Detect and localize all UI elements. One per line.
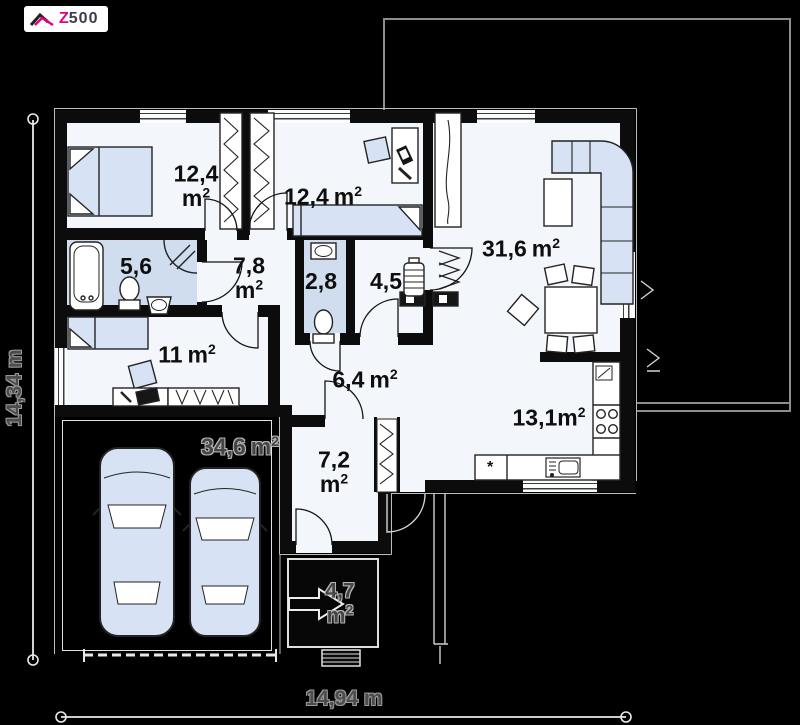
desk-chair bbox=[364, 137, 390, 163]
double-bed bbox=[68, 147, 152, 216]
room-label-wc: 2,8 bbox=[305, 269, 337, 293]
dimension-label-bottom: 14,94 m bbox=[305, 688, 382, 710]
toilet bbox=[119, 277, 140, 310]
wc-washbasin bbox=[311, 243, 336, 259]
guest-bed bbox=[68, 317, 148, 349]
room-label-vestibule: 7,2 m2 bbox=[318, 448, 350, 497]
room-label-corridor: 6,4m2 bbox=[332, 367, 397, 392]
fridge-marker: * bbox=[487, 459, 494, 476]
room-label-porch: 4,7 m2 bbox=[325, 580, 354, 627]
wc-toilet bbox=[313, 310, 334, 343]
bathtub bbox=[70, 242, 103, 310]
floor-plan-canvas: Z500 bbox=[0, 0, 800, 725]
logo-z: Z bbox=[59, 10, 69, 28]
room-label-garage: 34,6m2 bbox=[201, 434, 279, 459]
radiator-icon bbox=[439, 251, 459, 289]
room-label-guest-room: 11m2 bbox=[158, 342, 216, 367]
z500-logo: Z500 bbox=[24, 6, 108, 32]
shower bbox=[164, 240, 197, 273]
guest-desk bbox=[113, 388, 168, 406]
guest-wardrobe bbox=[168, 388, 239, 406]
dimension-line-left bbox=[28, 114, 38, 665]
logo-suffix: 500 bbox=[69, 10, 99, 28]
kitchen-sink bbox=[546, 458, 580, 477]
room-label-hall: 7,8 m2 bbox=[233, 254, 265, 303]
room-label-utility: 4,5 bbox=[370, 269, 402, 293]
desk bbox=[392, 128, 418, 183]
car bbox=[93, 448, 181, 636]
washbasin bbox=[147, 297, 171, 314]
dining-set bbox=[508, 264, 597, 353]
porch-steps bbox=[322, 650, 360, 666]
roof-icon bbox=[29, 10, 56, 28]
armchair bbox=[128, 360, 156, 388]
plan-symbols: * bbox=[0, 0, 800, 725]
coffee-table bbox=[544, 179, 572, 226]
single-bed bbox=[293, 205, 422, 236]
garage-door-dashed bbox=[84, 649, 276, 662]
hall-wardrobe bbox=[377, 419, 397, 492]
room-label-bathroom: 5,6 bbox=[120, 254, 152, 278]
room-label-kitchen: 13,1m2 bbox=[512, 405, 585, 430]
car bbox=[183, 468, 267, 636]
boiler bbox=[404, 258, 424, 296]
wardrobe-mirror bbox=[435, 113, 461, 227]
room-label-living-room: 31,6m2 bbox=[482, 236, 560, 261]
site-path-lines bbox=[434, 493, 448, 664]
room-label-bedroom1: 12,4 m2 bbox=[174, 162, 219, 211]
room-label-bedroom2: 12,4m2 bbox=[284, 184, 362, 209]
dimension-label-left: 14,34 m bbox=[4, 349, 26, 426]
dimension-line-bottom bbox=[56, 712, 631, 722]
